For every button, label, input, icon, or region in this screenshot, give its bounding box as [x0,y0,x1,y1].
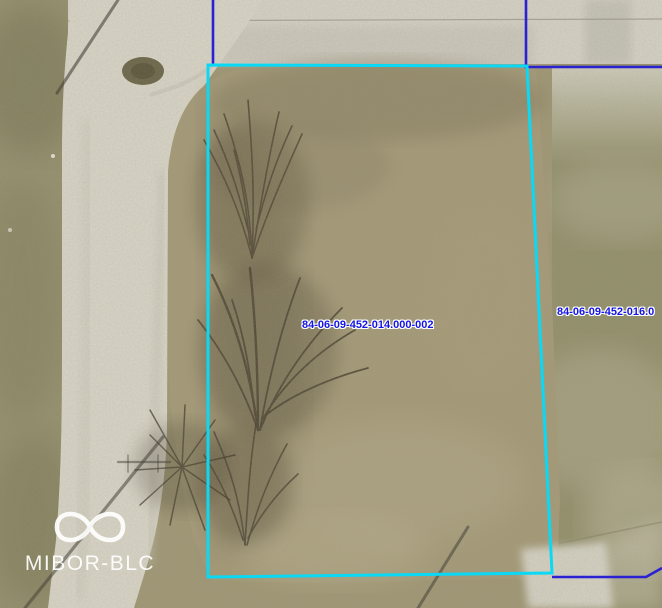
infinity-icon [47,503,133,551]
watermark: MIBOR-BLC [22,503,158,576]
parcel-line-topright [526,0,662,67]
parcel-boundary-lines [213,0,662,577]
watermark-text: MIBOR-BLC [22,552,158,576]
parcel-id-label-selected[interactable]: 84-06-09-452-014.000-002 [302,319,434,331]
parcel-id-label-adjacent[interactable]: 84-06-09-452-016.0 [557,306,654,318]
map-viewport[interactable]: 84-06-09-452-014.000-002 84-06-09-452-01… [0,0,662,608]
parcel-line-bottomright [552,568,662,577]
